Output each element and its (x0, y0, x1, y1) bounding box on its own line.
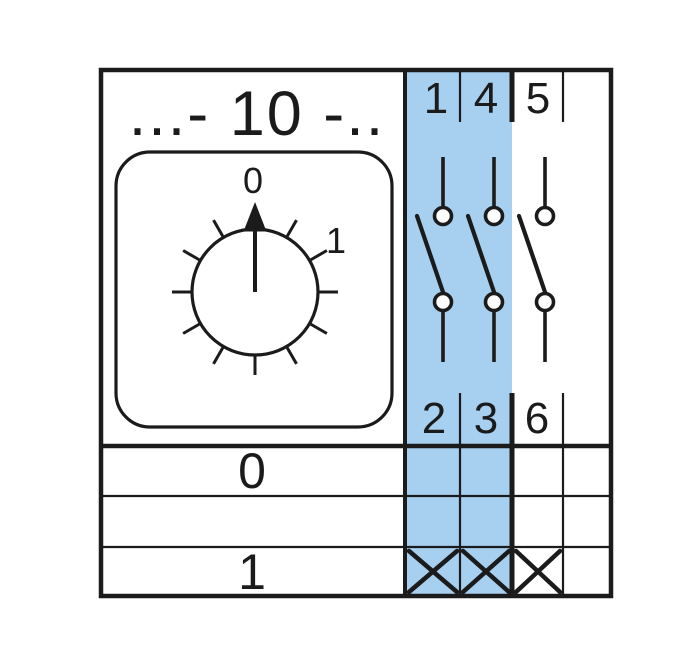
contact-terminal-circle (435, 208, 452, 225)
dial-pointer-icon (244, 202, 267, 292)
contact-switch-5-6 (519, 157, 554, 362)
switch-type-label: ...- 10 -.. (129, 79, 386, 149)
diagram-canvas: ...- 10 -.. 0 1 (0, 0, 694, 667)
contact-columns-highlight (405, 70, 512, 596)
terminal-label-2: 2 (422, 394, 446, 443)
contact-terminal-circle (537, 208, 554, 225)
dial-position-1-label: 1 (326, 220, 346, 261)
terminal-label-4: 4 (474, 74, 498, 123)
contact-terminal-circle (537, 294, 554, 311)
position-1-row-label: 1 (238, 544, 266, 600)
contact-terminal-circle (486, 294, 503, 311)
contact-state-table (101, 496, 611, 547)
dial-position-0-label: 0 (243, 160, 263, 201)
terminal-label-6: 6 (525, 394, 549, 443)
rotary-dial: 0 1 (116, 152, 392, 427)
terminal-label-5: 5 (526, 74, 550, 123)
position-0-row-label: 0 (238, 443, 266, 499)
contact-terminal-circle (486, 208, 503, 225)
contact-blade (519, 216, 546, 295)
terminal-label-3: 3 (474, 394, 498, 443)
contact-terminal-circle (435, 294, 452, 311)
terminal-label-1: 1 (424, 74, 448, 123)
cam-switch-wiring-diagram: ...- 10 -.. 0 1 (0, 0, 694, 667)
